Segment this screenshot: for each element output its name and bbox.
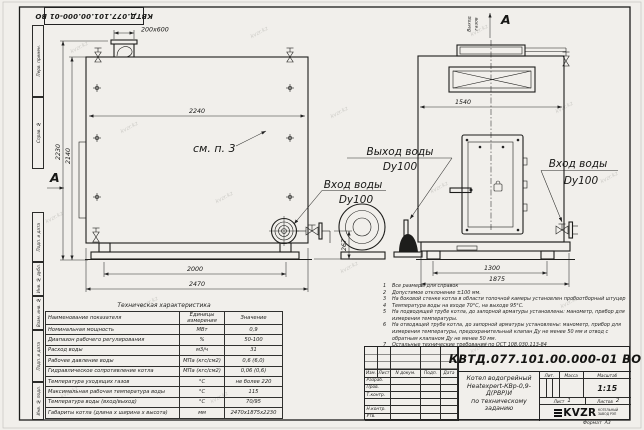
cell: 31 — [225, 345, 283, 355]
cell: Температура уходящих газов — [46, 376, 180, 386]
cell — [441, 392, 458, 399]
dim-1300: 1300 — [484, 265, 500, 272]
doc-number: КВТД.077.101.00.000-01 ВО — [458, 347, 631, 372]
cell — [421, 347, 441, 370]
door-lock-icon — [494, 184, 502, 191]
cell: % — [180, 335, 225, 345]
col-header: Единицы измерения — [180, 312, 225, 325]
dim-2240: 2240 — [189, 108, 205, 115]
cell: МПа (кгс/см2) — [180, 366, 225, 376]
vent-valve-icon — [287, 48, 294, 62]
role-prov: Пров. — [365, 385, 391, 392]
cell: не более 220 — [225, 376, 283, 386]
cell — [391, 392, 421, 399]
drawing-sheet: kvzr.kz kvzr.kz kvzr.kz kvzr.kz kvzr.kz … — [0, 0, 644, 430]
cell — [391, 378, 421, 385]
top-stamp-number: КВТД.077.101.00.000-01 ВО — [35, 12, 153, 20]
water-out-label: Выход воды — [367, 146, 434, 158]
doc-description: Котел водогрейный Heatexpert-КВр-0,9-Д(Р… — [458, 372, 539, 421]
cell — [421, 406, 441, 413]
sheets-cell: Листов2 — [586, 398, 632, 405]
sheets-number: 2 — [616, 398, 620, 404]
note-text: На подводящей трубе котла, до запорной а… — [392, 309, 629, 322]
desc-line: по техническому заданию — [459, 398, 539, 413]
cell: Габариты котла (длина х ширина х высота) — [46, 408, 180, 418]
desc-line: Котел водогрейный — [467, 375, 532, 383]
drain-valve-icon — [93, 228, 100, 242]
table-row: Гидравлическое сопротивление котлаМПа (к… — [46, 366, 283, 376]
table-row: Температура уходящих газов°Сне более 220 — [46, 376, 283, 386]
margin-box-sprav-n: Справ. № — [32, 97, 44, 169]
note-item: 6На отводящей трубе котла, до запорной а… — [383, 322, 629, 342]
table-row: Рабочее давление водыМПа (кгс/см2)0,6 (6… — [46, 356, 283, 366]
margin-box-inv-dubl: Инв. № дубл. — [32, 262, 44, 296]
cell — [365, 347, 378, 370]
cell: МПа (кгс/см2) — [180, 356, 225, 366]
kvzr-logo-subtitle: КОТЕЛЬНЫЙ ЗАВОД РЭП — [598, 409, 618, 416]
table-row: Температура воды (вход/выход)°С70/95 — [46, 397, 283, 407]
title-block-revision-grid: Изм. Лист N докум. Подп. Дата Разраб. Пр… — [365, 347, 458, 421]
flue-out-label: Выход — [467, 16, 473, 31]
cell — [378, 347, 391, 370]
col-podp: Подп. — [421, 370, 441, 378]
cell — [441, 414, 458, 421]
table-row: Номинальная мощностьМВт0,9 — [46, 325, 283, 335]
sheet-cell: Лист1 — [540, 398, 586, 405]
cell: Номинальная мощность — [46, 325, 180, 335]
top-stamp: КВТД.077.101.00.000-01 ВО — [44, 7, 144, 25]
cell: Максимальная рабочая температура воды — [46, 387, 180, 397]
cell — [391, 406, 421, 413]
table-row: Расход водым3/ч31 — [46, 345, 283, 355]
format-label: Формат — [583, 421, 602, 426]
cell: 0,06 (0,6) — [225, 366, 283, 376]
title-block: Изм. Лист N докум. Подп. Дата Разраб. Пр… — [364, 346, 630, 420]
note-item: 5На подводящей трубе котла, до запорной … — [383, 309, 629, 322]
notes-list: 1Все размеры для справок 2Допустимое отк… — [383, 283, 629, 349]
lit-cell — [540, 379, 547, 398]
table-header-row: Наименование показателя Единицы измерени… — [46, 312, 283, 325]
kvzr-logo-bars-icon — [554, 409, 562, 417]
tech-characteristics: Техническая характеристика Наименование … — [45, 302, 283, 419]
scale-label: Масштаб — [584, 372, 631, 379]
view-a-label-top: А — [500, 12, 511, 27]
water-in-right-dn: Dy100 — [564, 175, 599, 187]
dim-1875: 1875 — [489, 276, 505, 283]
title-block-right: Лит. Масса Масштаб 1:15 Лист1 Листов2 KV… — [539, 372, 631, 421]
cell: м3/ч — [180, 345, 225, 355]
cell — [421, 378, 441, 385]
dim-2230: 2230 — [55, 144, 62, 160]
dim-2470: 2470 — [189, 281, 205, 288]
cell: Гидравлическое сопротивление котла — [46, 366, 180, 376]
col-ndoc: N докум. — [391, 370, 421, 378]
margin-box-vzam-inv: Взам. инв. № — [32, 296, 44, 330]
role-utv: Утв. — [365, 414, 391, 421]
cell: 50-100 — [225, 335, 283, 345]
view-a-label-left: А — [49, 170, 60, 185]
mass-label: Масса — [560, 372, 584, 379]
see-item-callout: см. п. 3 — [193, 142, 236, 155]
cell — [391, 399, 421, 406]
cell: Температура воды (вход/выход) — [46, 397, 180, 407]
margin-label: Инв. № дубл. — [36, 264, 41, 293]
sheet-number: 1 — [567, 398, 571, 404]
margin-box-podp-data: Подп. и дата — [32, 212, 44, 262]
dim-1540: 1540 — [455, 99, 471, 106]
role-razrab: Разраб. — [365, 378, 391, 385]
margin-label: Взам. инв. № — [36, 298, 41, 327]
cell: 2470х1875х2230 — [225, 408, 283, 418]
water-in-label: Вход воды — [324, 179, 383, 191]
col-header: Наименование показателя — [46, 312, 180, 325]
water-in-dn: Dy100 — [339, 194, 374, 206]
margin-label: Перв. примен. — [36, 45, 41, 76]
louver-grille — [449, 67, 535, 92]
cell — [391, 414, 421, 421]
cell — [441, 378, 458, 385]
mass-cell — [560, 379, 584, 398]
cell — [441, 399, 458, 406]
margin-label: Подп. и дата — [36, 342, 41, 371]
col-header: Значение — [225, 312, 283, 325]
water-in-right-label: Вход воды — [549, 158, 608, 170]
chimney-stub — [111, 40, 137, 57]
water-out-dn: Dy100 — [383, 161, 418, 173]
role-nkontr: Н.контр. — [365, 406, 391, 413]
format-note: Формат А3 — [583, 421, 611, 426]
role-empty — [365, 399, 391, 406]
table-row: Габариты котла (длина х ширина х высота)… — [46, 408, 283, 418]
note-text: На отводящей трубе котла, до запорной ар… — [392, 322, 629, 342]
dim-chimney: 200х600 — [141, 27, 169, 34]
cell: 0,6 (6,0) — [225, 356, 283, 366]
lit-label: Лит. — [540, 372, 560, 379]
cell — [441, 406, 458, 413]
cell — [421, 385, 441, 392]
cell — [391, 385, 421, 392]
desc-line: Heatexpert-КВр-0,9-Д(РВР)И — [459, 383, 539, 398]
water-inlet-right — [556, 222, 578, 238]
col-data: Дата — [441, 370, 458, 378]
kvzr-logo-text: KVZR — [563, 407, 596, 419]
margin-box-inv-podl: Инв. № подл. — [32, 382, 44, 420]
cell: Диапазон рабочего регулирования — [46, 335, 180, 345]
scale-value: 1:15 — [584, 379, 631, 398]
sheet-label: Лист — [554, 399, 565, 404]
cell: 70/95 — [225, 397, 283, 407]
cell: °С — [180, 376, 225, 386]
cell: Расход воды — [46, 345, 180, 355]
margin-box-perv-primen: Перв. примен. — [32, 25, 44, 97]
tech-table: Наименование показателя Единицы измерени… — [45, 311, 283, 419]
table-row: Диапазон рабочего регулирования%50-100 — [46, 335, 283, 345]
col-list: Лист — [378, 370, 391, 378]
tech-table-title: Техническая характеристика — [45, 302, 283, 309]
cell: мм — [180, 408, 225, 418]
sheets-label: Листов — [597, 399, 613, 404]
cell — [421, 392, 441, 399]
kvzr-logo: KVZR КОТЕЛЬНЫЙ ЗАВОД РЭП — [540, 405, 632, 421]
furnace-door — [450, 135, 527, 234]
margin-label: Подп. и дата — [36, 223, 41, 252]
kvzr-sub-line: ЗАВОД РЭП — [598, 413, 618, 417]
cell — [391, 347, 421, 370]
cell: °С — [180, 387, 225, 397]
cell: Рабочее давление воды — [46, 356, 180, 366]
cell: °С — [180, 397, 225, 407]
cell: 0,9 — [225, 325, 283, 335]
water-inlet-flange — [269, 216, 299, 246]
cell — [421, 399, 441, 406]
dim-2140: 2140 — [65, 148, 72, 164]
note-number: 6 — [383, 322, 392, 342]
dim-267: 267 — [341, 239, 348, 251]
dim-2000: 2000 — [187, 266, 203, 273]
col-izm: Изм. — [365, 370, 378, 378]
format-value: А3 — [605, 421, 611, 426]
margin-box-podp-data2: Подп. и дата — [32, 330, 44, 382]
role-tkontr: Т.контр. — [365, 392, 391, 399]
cell — [441, 385, 458, 392]
cell — [421, 414, 441, 421]
margin-label: Справ. № — [36, 122, 41, 143]
cell: МВт — [180, 325, 225, 335]
cell: 115 — [225, 387, 283, 397]
vent-valve-icon — [95, 48, 102, 62]
margin-label: Инв. № подл. — [36, 386, 41, 416]
lit-cell — [547, 379, 554, 398]
table-row: Максимальная рабочая температура воды°С1… — [46, 387, 283, 397]
note-number: 5 — [383, 309, 392, 322]
flue-out-label: газов — [475, 17, 480, 30]
